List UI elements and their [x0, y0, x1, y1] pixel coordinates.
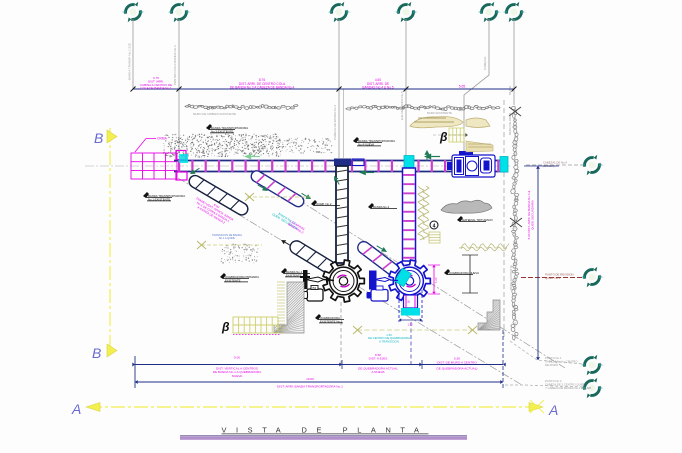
- svg-text:MURO DE CRIBADO EXISTENTE: MURO DE CRIBADO EXISTENTE: [193, 112, 236, 116]
- svg-text:B: B: [92, 345, 101, 361]
- svg-text:CABEZAL: CABEZAL: [483, 56, 487, 70]
- svg-text:CABEZA DE BANDA No.4: CABEZA DE BANDA No.4: [333, 105, 337, 140]
- svg-text:DE QUEBRADORA ACTUAL): DE QUEBRADORA ACTUAL): [437, 367, 478, 371]
- svg-text:DIST. ARRI. BANDA TRANSPORTADO: DIST. ARRI. BANDA TRANSPORTADORA No.1: [277, 385, 343, 389]
- svg-text:β: β: [221, 320, 230, 334]
- svg-text:VISTA DE PLANTA: VISTA DE PLANTA: [222, 426, 429, 435]
- svg-text:DE MURO: DE MURO: [545, 363, 559, 367]
- svg-text:BANDA TRANSP. No.1 EJE: BANDA TRANSP. No.1 EJE: [128, 43, 132, 80]
- svg-text:MURO: MURO: [508, 85, 512, 95]
- svg-text:Y CABEZA DE BANDA No.1 2 QUEB: Y CABEZA DE BANDA No.1 2 QUEB: [545, 386, 591, 390]
- svg-text:19.60: 19.60: [306, 377, 314, 381]
- svg-text:9.00: 9.00: [234, 356, 240, 360]
- svg-text:CENTRO COLA BANDA No.3: CENTRO COLA BANDA No.3: [173, 45, 177, 85]
- svg-text:CRIBA: CRIBA: [157, 137, 168, 141]
- svg-text:QUEB. No.2: QUEB. No.2: [316, 202, 332, 206]
- svg-text:5.65: 5.65: [459, 85, 466, 89]
- svg-text:B3: B3: [313, 286, 317, 290]
- svg-text:A: A: [71, 401, 81, 417]
- svg-text:β: β: [439, 130, 448, 144]
- svg-text:A: A: [548, 402, 558, 418]
- svg-text:QUEBRADORA NUEVA: QUEBRADORA NUEVA: [449, 271, 479, 275]
- svg-text:MURO DE ROCA: MURO DE ROCA: [508, 113, 512, 135]
- svg-text:MURO EXISTENTE: MURO EXISTENTE: [427, 111, 452, 115]
- svg-text:EJE DE BANDA No.5: EJE DE BANDA No.5: [400, 91, 404, 120]
- svg-text:1.20: 1.20: [407, 323, 413, 327]
- svg-text:MURO EXISTENTE: MURO EXISTENTE: [509, 265, 513, 290]
- svg-text:MATERIAL TRITURADO: MATERIAL TRITURADO: [462, 218, 494, 222]
- svg-text:BANDA No.2: BANDA No.2: [373, 205, 390, 209]
- svg-text:QUEB. No.1: QUEB. No.1: [545, 276, 561, 280]
- svg-text:1.60: 1.60: [434, 277, 438, 283]
- svg-text:B: B: [94, 130, 103, 146]
- svg-text:4: 4: [433, 223, 436, 229]
